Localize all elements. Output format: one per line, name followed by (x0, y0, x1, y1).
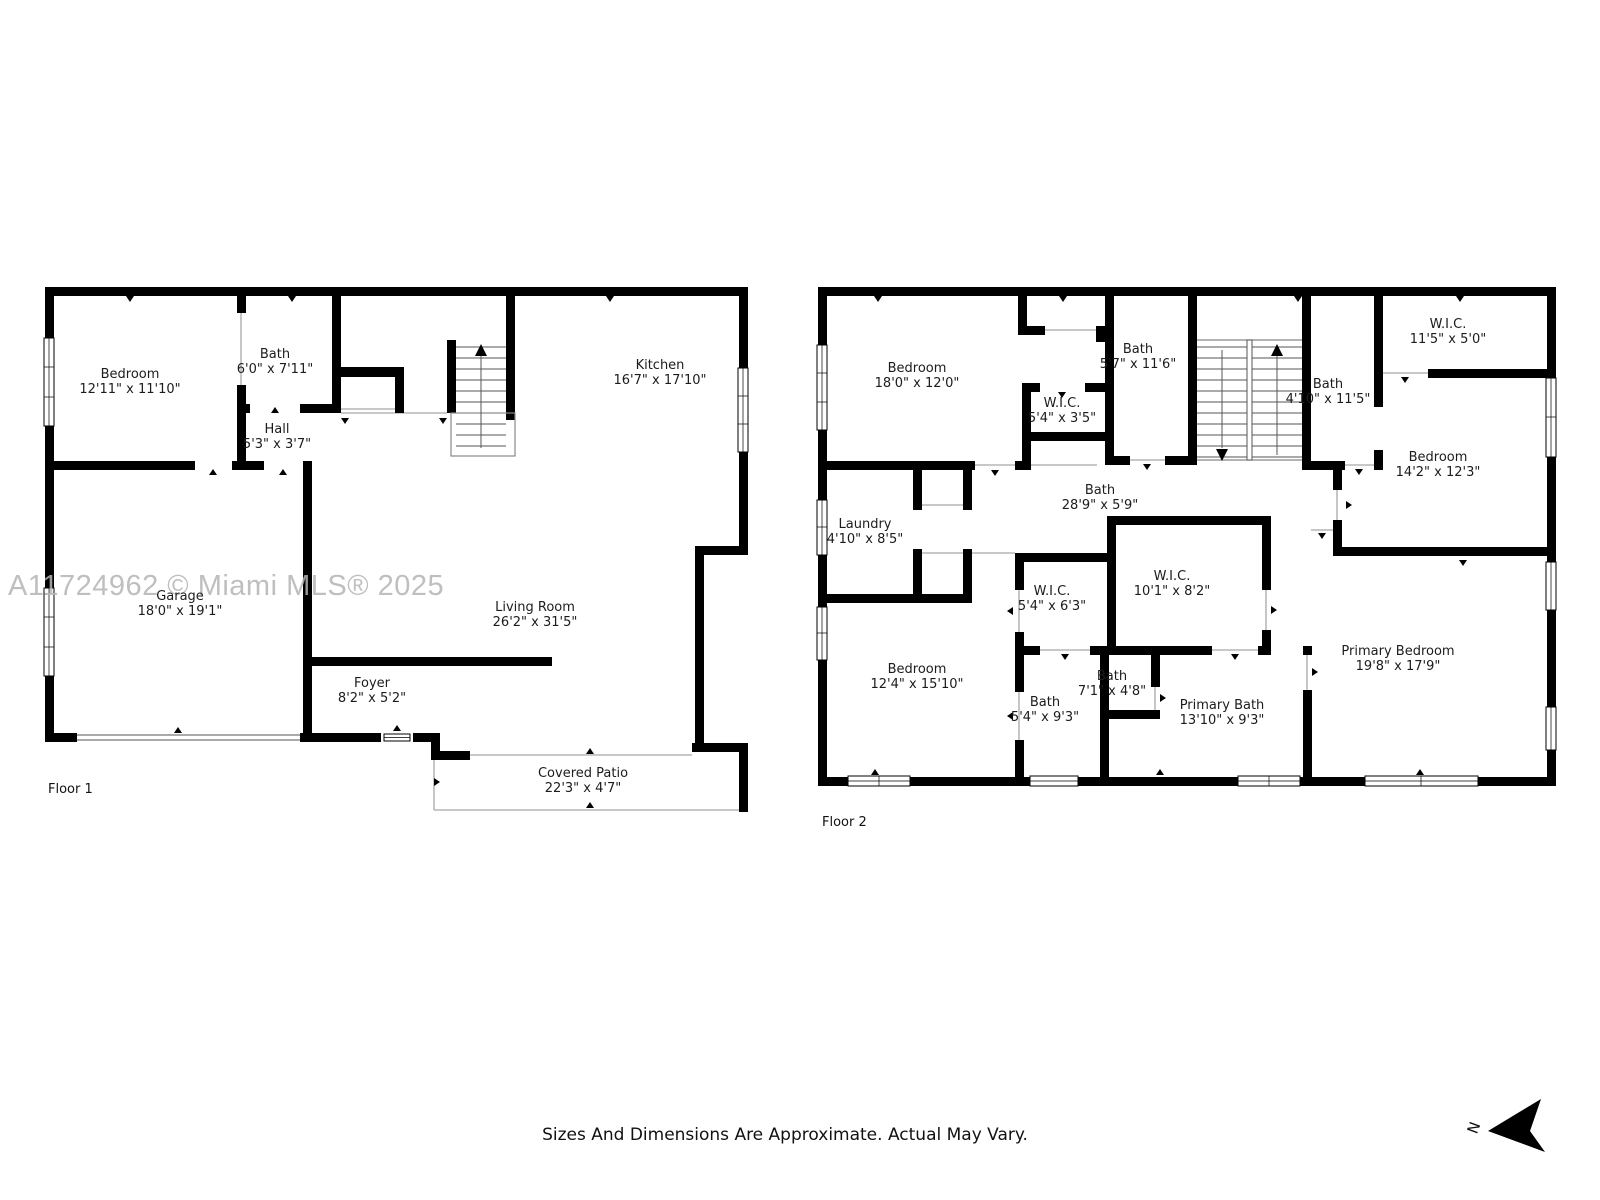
room-label-f2-bath-7-1: Bath 7'1" x 4'8" (1078, 670, 1146, 699)
floor1-stairs (451, 344, 515, 456)
room-label-f1-bath: Bath 6'0" x 7'11" (237, 348, 313, 377)
room-label-f1-foyer: Foyer 8'2" x 5'2" (338, 677, 406, 706)
room-label-f1-hall: Hall 5'3" x 3'7" (243, 423, 311, 452)
room-label-f1-covered-patio: Covered Patio 22'3" x 4'7" (538, 767, 628, 796)
room-label-f2-wic-11-5: W.I.C. 11'5" x 5'0" (1410, 318, 1486, 347)
room-label-f2-wic-5-4: W.I.C. 5'4" x 6'3" (1018, 585, 1086, 614)
room-label-f2-laundry: Laundry 4'10" x 8'5" (827, 518, 903, 547)
garage-door (77, 735, 300, 740)
disclaimer-text: Sizes And Dimensions Are Approximate. Ac… (0, 1125, 1570, 1145)
room-label-f2-primary-bath: Primary Bath 13'10" x 9'3" (1180, 699, 1265, 728)
mls-watermark: A11724962 © Miami MLS® 2025 (8, 570, 444, 603)
floor-plan-page: N A11724962 © Miami MLS® 2025 Bedroom 12… (0, 0, 1600, 1200)
room-label-f1-garage: Garage 18'0" x 19'1" (138, 590, 223, 619)
room-label-f1-living-room: Living Room 26'2" x 31'5" (493, 601, 578, 630)
room-label-f1-kitchen: Kitchen 16'7" x 17'10" (614, 359, 707, 388)
room-label-f2-bath-4-10: Bath 4'10" x 11'5" (1286, 378, 1371, 407)
room-label-f2-bedroom-12-4: Bedroom 12'4" x 15'10" (871, 663, 964, 692)
room-label-f2-primary-bedroom: Primary Bedroom 19'8" x 17'9" (1341, 645, 1454, 674)
room-label-f2-hall-bath: Bath 28'9" x 5'9" (1062, 484, 1138, 513)
room-label-f2-bedroom-14-2: Bedroom 14'2" x 12'3" (1396, 451, 1481, 480)
room-label-f2-wic-10-1: W.I.C. 10'1" x 8'2" (1134, 570, 1210, 599)
floor2-label: Floor 2 (822, 815, 867, 830)
floor1-label: Floor 1 (48, 782, 93, 797)
room-label-f2-bath-5-4: Bath 5'4" x 9'3" (1011, 696, 1079, 725)
entry-door (381, 732, 413, 743)
room-label-f2-wic-small: W.I.C. 5'4" x 3'5" (1028, 397, 1096, 426)
room-label-f2-bath-5-7: Bath 5'7" x 11'6" (1100, 343, 1176, 372)
room-label-f1-bedroom: Bedroom 12'11" x 11'10" (79, 368, 180, 397)
room-label-f2-bedroom-18: Bedroom 18'0" x 12'0" (875, 362, 960, 391)
